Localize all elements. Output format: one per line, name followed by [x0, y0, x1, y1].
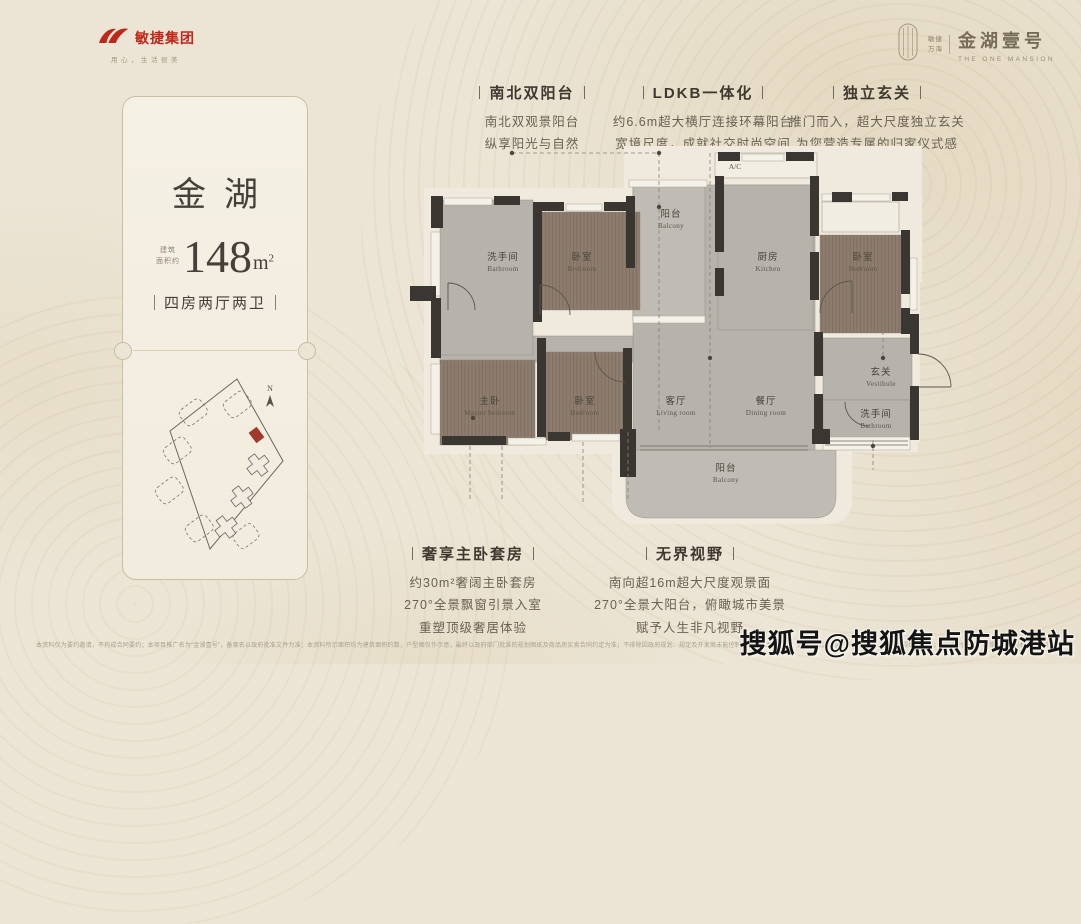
room-label-dining-en: Dining room — [746, 409, 787, 417]
project-prefix-line1: 敏捷 — [928, 36, 943, 43]
callout-title: 奢享主卧套房 — [362, 543, 584, 564]
card-notch-right — [298, 342, 316, 360]
project-emblem-icon — [896, 22, 920, 67]
room-label-balcony-n-en: Balcony — [658, 222, 684, 230]
site-minimap: N — [140, 369, 290, 564]
room-label-master: 主卧 — [479, 395, 500, 407]
callout-line: 约30m²奢阔主卧套房 — [362, 572, 584, 594]
watermark: 搜狐号@搜狐焦点防城港站 — [740, 622, 1075, 661]
callout-title-text: 无界视野 — [656, 543, 724, 564]
area-unit-m: m — [253, 252, 269, 274]
room-label-bathroom-nw-en: Bathroom — [487, 265, 518, 273]
room-label-bathroom-se-en: Bathroom — [860, 422, 891, 430]
room-label-balcony-s-en: Balcony — [713, 476, 739, 484]
room-label-kitchen: 厨房 — [757, 251, 778, 263]
room-label-bedroom-ne: 卧室 — [852, 251, 873, 263]
title-bar-right — [584, 86, 585, 99]
callout-title-text: 南北双阳台 — [489, 82, 574, 103]
project-prefix-line2: 万海 — [928, 46, 943, 53]
room-label-balcony-n: 阳台 — [660, 208, 681, 220]
callout-title-text: 独立玄关 — [843, 82, 911, 103]
area-prefix-label: 建筑 面积约 — [156, 245, 180, 267]
card-divider — [133, 350, 297, 351]
title-bar-right — [920, 86, 921, 99]
title-bar-right — [762, 86, 763, 99]
entry-door-arc — [918, 354, 951, 387]
room-label-bathroom-se: 洗手间 — [860, 408, 892, 420]
unit-area: 建筑 面积约 148 m2 — [123, 236, 307, 277]
area-prefix-line1: 建筑 — [160, 247, 176, 254]
title-bar-left — [833, 86, 834, 99]
callout-master-suite: 奢享主卧套房 约30m²奢阔主卧套房 270°全景飘窗引景入室 重塑顶级奢居体验 — [362, 543, 584, 639]
room-label-bedroom-nw: 卧室 — [571, 251, 592, 263]
room-label-master-en: Master bedroom — [464, 409, 516, 417]
project-prefix: 敏捷 万海 — [928, 35, 950, 55]
area-value: 148 — [183, 236, 252, 277]
unit-name: 金湖 — [123, 167, 307, 216]
project-name: 金湖壹号 — [958, 27, 1055, 53]
room-label-dining: 餐厅 — [755, 395, 776, 407]
room-label-bedroom-s-en: Bedroom — [571, 409, 600, 417]
room-label-living-en: Living room — [656, 409, 696, 417]
title-bar-left — [646, 547, 647, 560]
highlighted-building — [249, 427, 265, 443]
room-label-bedroom-s: 卧室 — [574, 395, 595, 407]
area-unit-sup: 2 — [269, 253, 275, 265]
area-prefix-line2: 面积约 — [156, 258, 180, 265]
compass-arrow-icon — [266, 395, 274, 407]
unit-spec: 四房两厅两卫 — [123, 292, 307, 313]
room-label-vestibule: 玄关 — [870, 366, 891, 378]
callout-title-text: 奢享主卧套房 — [422, 543, 524, 564]
site-buildings-dashed — [153, 389, 261, 550]
room-label-bathroom-nw: 洗手间 — [487, 251, 519, 263]
ac-label: A/C — [729, 162, 742, 171]
spec-bar-right — [275, 295, 276, 310]
callout-line: 重塑顶级奢居体验 — [362, 617, 584, 639]
callout-body: 约30m²奢阔主卧套房 270°全景飘窗引景入室 重塑顶级奢居体验 — [362, 572, 584, 639]
callout-line: 南向超16m超大尺度观景面 — [579, 572, 801, 594]
project-logo: 敏捷 万海 金湖壹号 THE ONE MANSION — [896, 22, 1055, 67]
callout-line: 270°全景大阳台，俯瞰城市美景 — [579, 594, 801, 616]
title-bar-right — [733, 547, 734, 560]
callout-title-text: LDKB一体化 — [653, 82, 754, 103]
title-bar-right — [533, 547, 534, 560]
spec-bar-left — [154, 295, 155, 310]
callout-line: 270°全景飘窗引景入室 — [362, 594, 584, 616]
room-label-living: 客厅 — [665, 395, 686, 407]
room-label-kitchen-en: Kitchen — [756, 265, 781, 273]
developer-tagline: 用心，生活很美 — [66, 54, 226, 64]
title-bar-left — [643, 86, 644, 99]
room-label-bedroom-nw-en: Bedroom — [568, 265, 597, 273]
callout-line: 推门而入，超大尺度独立玄关 — [766, 111, 988, 133]
area-unit: m2 — [253, 252, 274, 275]
spec-text: 四房两厅两卫 — [164, 292, 266, 313]
room-label-bedroom-ne-en: Bedroom — [849, 265, 878, 273]
card-notch-left — [114, 342, 132, 360]
room-label-vestibule-en: Vestibule — [866, 380, 896, 388]
developer-swoosh-icon — [97, 26, 131, 50]
room-label-balcony-s: 阳台 — [715, 462, 736, 474]
callout-title: 独立玄关 — [766, 82, 988, 103]
title-bar-left — [412, 547, 413, 560]
callout-title: 无界视野 — [579, 543, 801, 564]
compass-n-label: N — [267, 384, 273, 393]
developer-name: 敏捷集团 — [135, 28, 195, 48]
floor-plan: A/C 洗手间 Bathroom 卧室 Bedroom 阳台 Balcony 厨… — [398, 140, 958, 545]
developer-logo: 敏捷集团 用心，生活很美 — [66, 26, 226, 64]
unit-info-card: 金湖 建筑 面积约 148 m2 四房两厅两卫 — [122, 96, 308, 580]
project-subtitle: THE ONE MANSION — [958, 56, 1055, 63]
title-bar-left — [479, 86, 480, 99]
